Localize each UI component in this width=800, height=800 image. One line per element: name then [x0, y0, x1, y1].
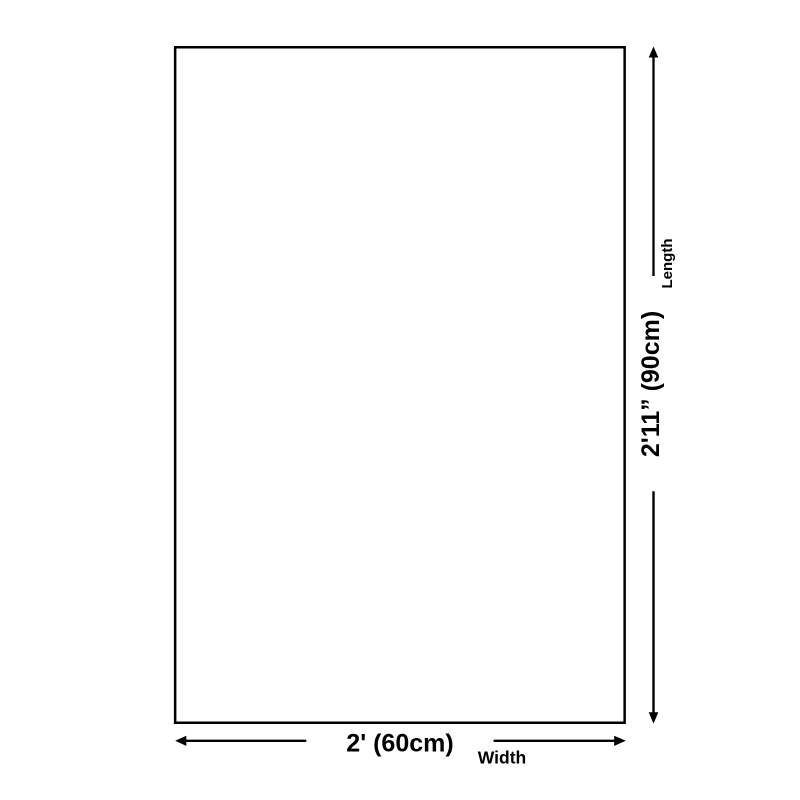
svg-text:2' (60cm): 2' (60cm) — [346, 730, 453, 758]
svg-text:Width: Width — [478, 748, 526, 768]
svg-text:2'11” (90cm): 2'11” (90cm) — [637, 311, 665, 457]
svg-text:Length: Length — [659, 239, 676, 289]
